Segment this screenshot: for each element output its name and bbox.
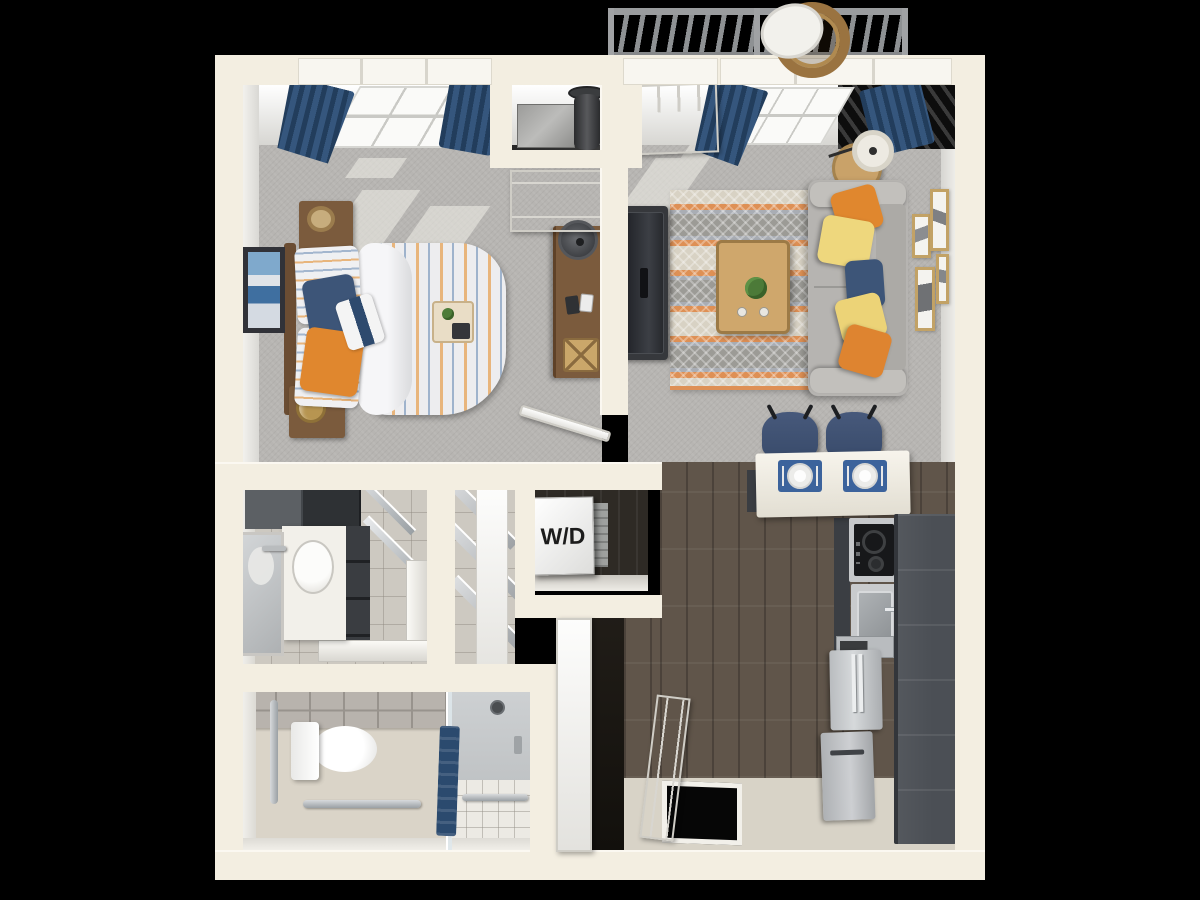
place-setting	[778, 460, 822, 492]
grab-bar	[270, 700, 278, 804]
coffee-table	[716, 240, 790, 334]
vanity-drawers	[346, 526, 370, 640]
desk-item	[565, 295, 580, 315]
hat	[307, 206, 335, 232]
wall	[515, 485, 535, 597]
wall-face	[528, 575, 648, 591]
fridge-handle	[851, 654, 856, 712]
burner	[868, 556, 884, 572]
tv	[626, 212, 664, 354]
balcony	[608, 8, 908, 60]
vanity-faucet	[262, 546, 286, 551]
fork	[782, 466, 784, 486]
railing-post	[608, 8, 614, 59]
basket	[563, 338, 599, 372]
upper-cabinet	[303, 488, 361, 526]
vanity-counter	[282, 526, 346, 640]
dishwasher-handle	[830, 749, 864, 755]
lamp-finial	[869, 147, 877, 155]
wall	[600, 85, 628, 415]
picture-frame	[930, 189, 949, 251]
water-heater	[574, 94, 600, 150]
hvac-box	[517, 104, 575, 148]
knife	[816, 466, 818, 486]
plate	[852, 463, 878, 489]
shower-head	[490, 700, 505, 715]
desk-item	[579, 293, 594, 312]
picture-frame	[915, 267, 935, 331]
wall	[427, 485, 455, 670]
stacked-washer-dryer: W/D	[531, 496, 594, 575]
mirror-reflection	[248, 547, 274, 585]
hall-shadow-strip	[592, 612, 624, 852]
floor-plan: W/D	[0, 0, 1200, 900]
plant	[745, 277, 767, 299]
wall	[955, 55, 985, 880]
towel	[436, 726, 460, 837]
nightstand	[299, 201, 353, 251]
railing-post	[902, 8, 908, 59]
bathroom-door	[556, 618, 592, 852]
upper-cabinet	[245, 489, 303, 529]
coaster	[737, 307, 747, 317]
refrigerator	[829, 650, 882, 731]
mechanical-closet-door	[510, 170, 602, 232]
plate	[787, 463, 813, 489]
coaster	[759, 307, 769, 317]
wall-face	[243, 692, 256, 852]
cooktop-knobs	[856, 542, 860, 564]
fork	[847, 466, 849, 486]
lamp-bulb	[576, 238, 584, 246]
bar-stool	[762, 412, 818, 456]
plant	[442, 308, 454, 320]
tv-mount	[640, 268, 648, 298]
cooktop-counter	[849, 518, 899, 582]
washer-dryer-label: W/D	[540, 522, 585, 550]
toilet	[313, 726, 377, 772]
window-in-wall	[298, 58, 492, 85]
grab-bar	[303, 800, 421, 808]
fridge-handle	[858, 654, 863, 712]
cabinet-side	[834, 518, 850, 652]
breakfast-tray	[432, 301, 474, 343]
balcony-door-in-wall	[623, 58, 718, 85]
picture-frame	[912, 214, 931, 258]
place-setting	[843, 460, 887, 492]
wall-art	[243, 247, 285, 333]
bar-stool	[826, 412, 882, 456]
cooktop	[854, 524, 894, 576]
kitchen-sink	[857, 591, 893, 641]
wall	[215, 850, 985, 880]
wall	[215, 664, 557, 692]
dishwasher	[820, 731, 875, 821]
wall	[530, 664, 557, 852]
wall	[490, 150, 640, 168]
grab-bar	[462, 794, 528, 801]
shower-handle	[514, 736, 522, 754]
wall	[515, 595, 662, 618]
tall-cabinets	[894, 514, 956, 844]
toilet-tank	[291, 722, 319, 780]
picture-frame	[936, 254, 949, 304]
book	[452, 323, 470, 339]
washer-dryer-side	[593, 503, 608, 567]
knife	[881, 466, 883, 486]
burner	[862, 530, 886, 554]
closet-door	[476, 487, 508, 665]
vanity-sink	[292, 540, 334, 594]
floor-lamp	[852, 130, 894, 172]
shower-curb	[318, 640, 428, 662]
railing-post	[754, 8, 760, 59]
